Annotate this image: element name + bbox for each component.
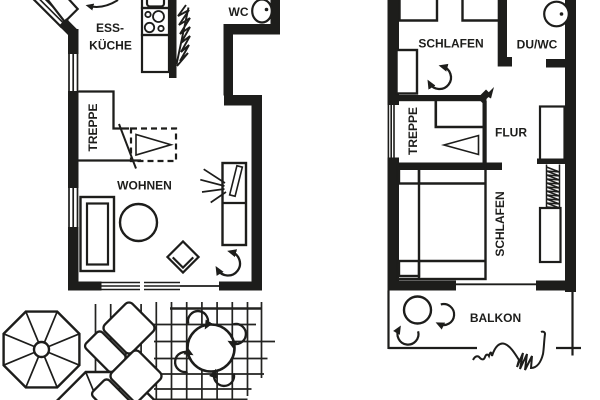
svg-text:KÜCHE: KÜCHE: [89, 38, 132, 53]
svg-text:WC: WC: [229, 5, 249, 19]
svg-text:TREPPE: TREPPE: [86, 103, 100, 151]
svg-text:FLUR: FLUR: [495, 126, 527, 140]
svg-text:TREPPE: TREPPE: [406, 107, 420, 155]
svg-text:WOHNEN: WOHNEN: [117, 179, 172, 193]
svg-text:SCHLAFEN: SCHLAFEN: [493, 191, 507, 256]
svg-text:ESS-: ESS-: [96, 21, 124, 35]
svg-text:DU/WC: DU/WC: [517, 38, 558, 52]
svg-text:BALKON: BALKON: [470, 311, 521, 325]
svg-text:SCHLAFEN: SCHLAFEN: [418, 37, 483, 51]
